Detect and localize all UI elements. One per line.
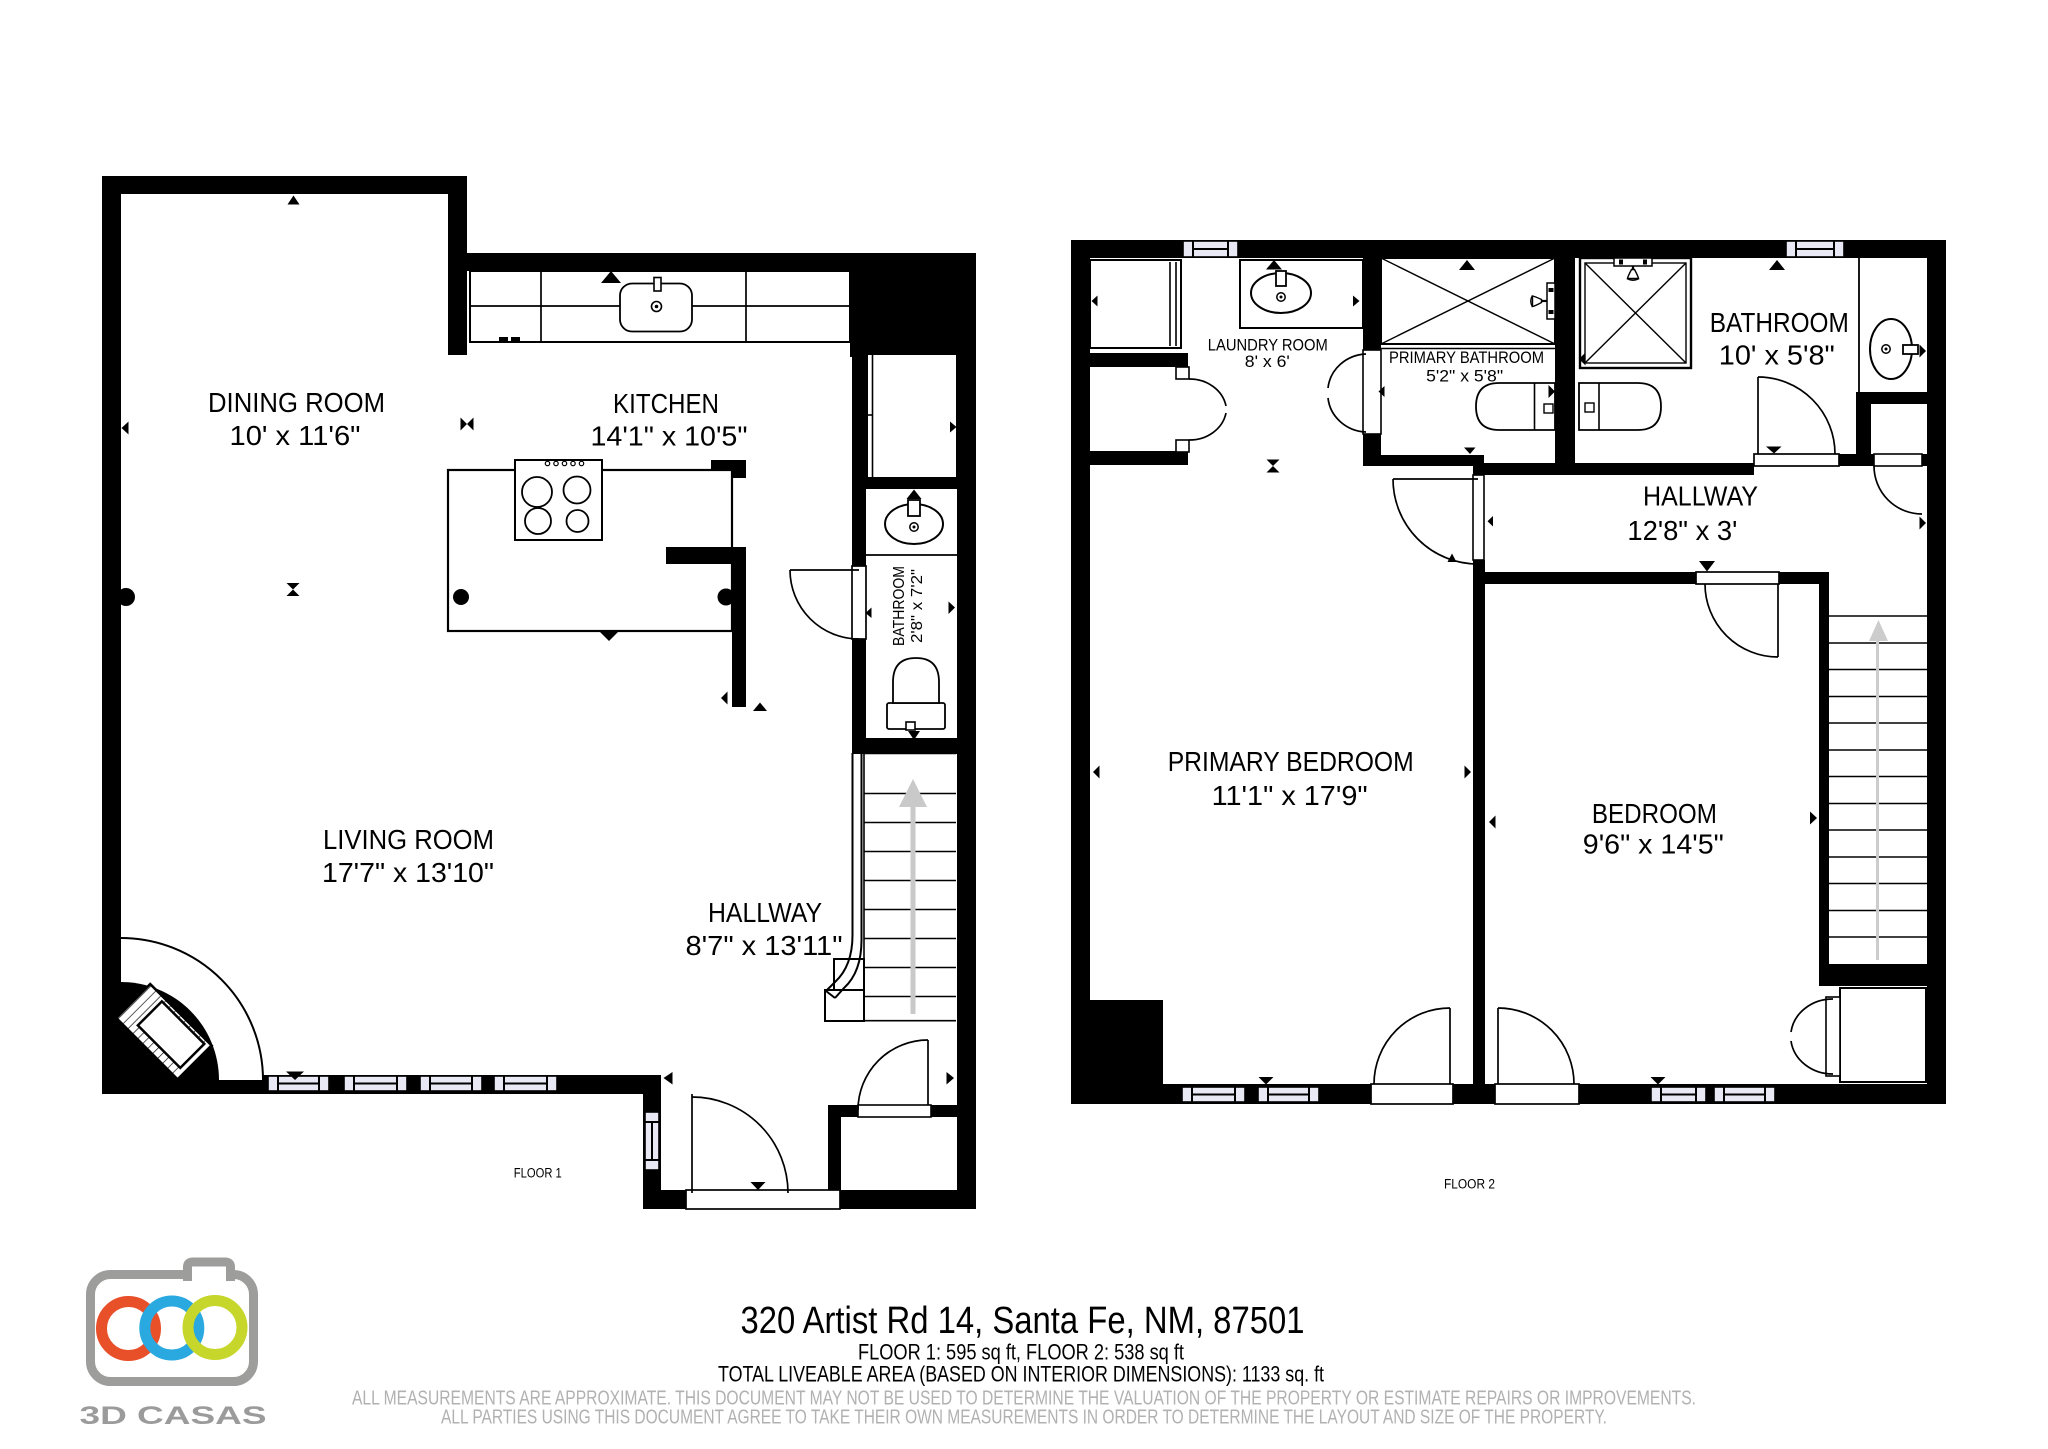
svg-text:BEDROOM: BEDROOM xyxy=(1592,798,1717,829)
svg-text:10' x 5'8": 10' x 5'8" xyxy=(1719,340,1835,371)
svg-text:BATHROOM: BATHROOM xyxy=(1710,307,1849,338)
svg-text:5'2" x 5'8": 5'2" x 5'8" xyxy=(1426,366,1503,385)
svg-text:8' x 6': 8' x 6' xyxy=(1245,352,1290,371)
svg-text:320 Artist Rd 14, Santa Fe, NM: 320 Artist Rd 14, Santa Fe, NM, 87501 xyxy=(741,1300,1305,1342)
svg-text:3D CASAS: 3D CASAS xyxy=(80,1402,267,1430)
svg-text:ALL PARTIES USING THIS DOCUMEN: ALL PARTIES USING THIS DOCUMENT AGREE TO… xyxy=(441,1407,1607,1429)
svg-text:KITCHEN: KITCHEN xyxy=(613,388,719,419)
svg-text:14'1" x 10'5": 14'1" x 10'5" xyxy=(591,421,748,452)
svg-text:LIVING ROOM: LIVING ROOM xyxy=(323,824,494,855)
svg-text:2'8" x 7'2": 2'8" x 7'2" xyxy=(909,569,926,643)
svg-text:DINING ROOM: DINING ROOM xyxy=(208,387,385,418)
svg-text:HALLWAY: HALLWAY xyxy=(708,897,822,928)
svg-text:FLOOR 2: FLOOR 2 xyxy=(1444,1177,1495,1192)
svg-text:BATHROOM: BATHROOM xyxy=(891,566,908,646)
svg-text:PRIMARY BATHROOM: PRIMARY BATHROOM xyxy=(1389,348,1544,367)
svg-text:TOTAL LIVEABLE AREA (BASED ON: TOTAL LIVEABLE AREA (BASED ON INTERIOR D… xyxy=(718,1362,1324,1387)
svg-text:PRIMARY BEDROOM: PRIMARY BEDROOM xyxy=(1168,746,1414,777)
svg-text:8'7" x 13'11": 8'7" x 13'11" xyxy=(686,930,843,961)
svg-text:17'7" x 13'10": 17'7" x 13'10" xyxy=(322,857,494,888)
svg-text:HALLWAY: HALLWAY xyxy=(1643,481,1758,512)
svg-text:FLOOR 1: FLOOR 1 xyxy=(514,1166,562,1181)
svg-text:9'6" x 14'5": 9'6" x 14'5" xyxy=(1583,829,1724,860)
svg-text:10' x 11'6": 10' x 11'6" xyxy=(230,420,361,451)
svg-text:11'1" x 17'9": 11'1" x 17'9" xyxy=(1212,780,1368,811)
svg-text:12'8" x 3': 12'8" x 3' xyxy=(1627,515,1737,546)
